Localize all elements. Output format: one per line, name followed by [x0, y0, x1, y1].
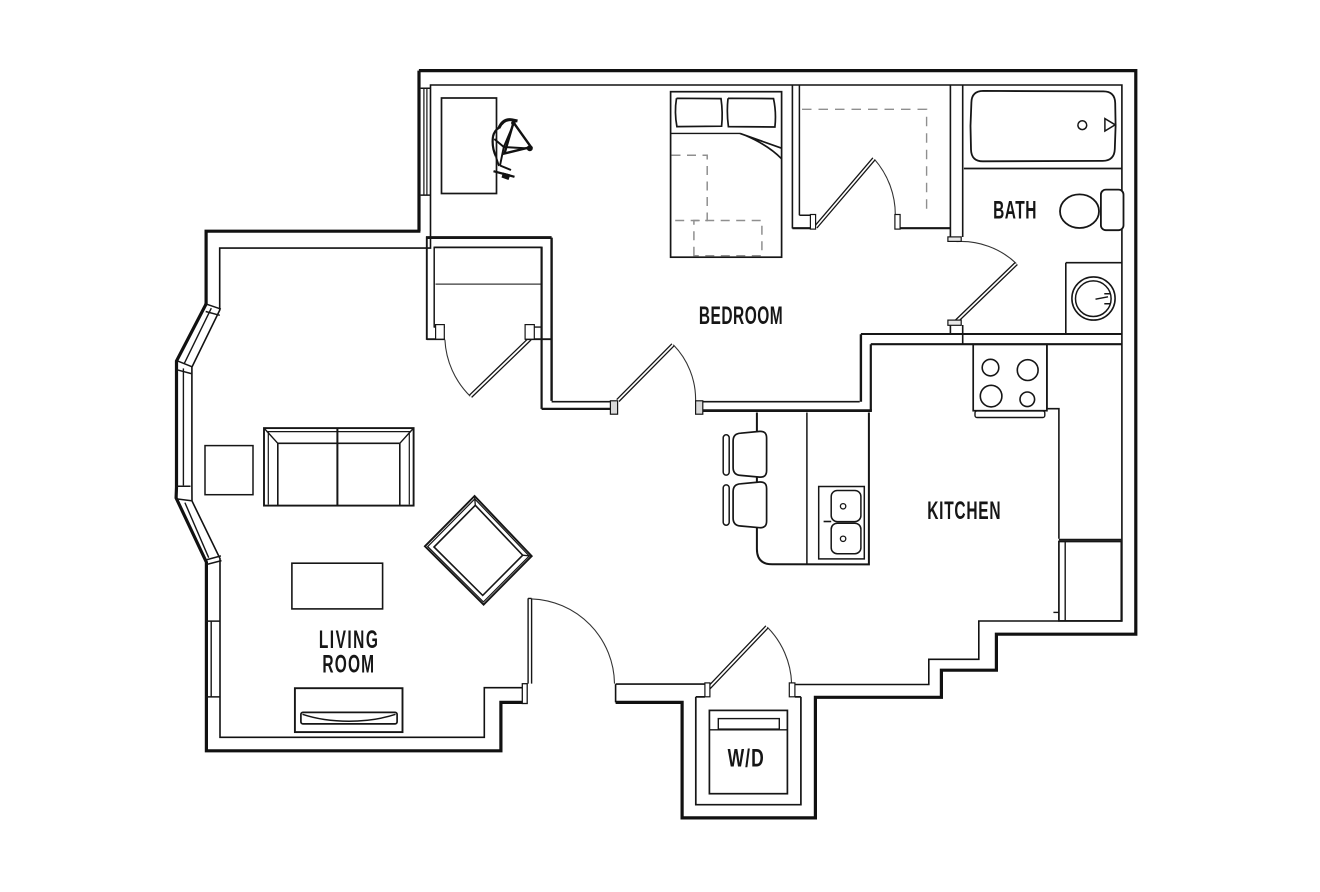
svg-text:ROOM: ROOM	[322, 651, 375, 679]
svg-text:W/D: W/D	[728, 743, 765, 772]
svg-text:KITCHEN: KITCHEN	[927, 498, 1001, 526]
svg-text:BATH: BATH	[993, 197, 1037, 225]
svg-text:BEDROOM: BEDROOM	[699, 302, 783, 330]
